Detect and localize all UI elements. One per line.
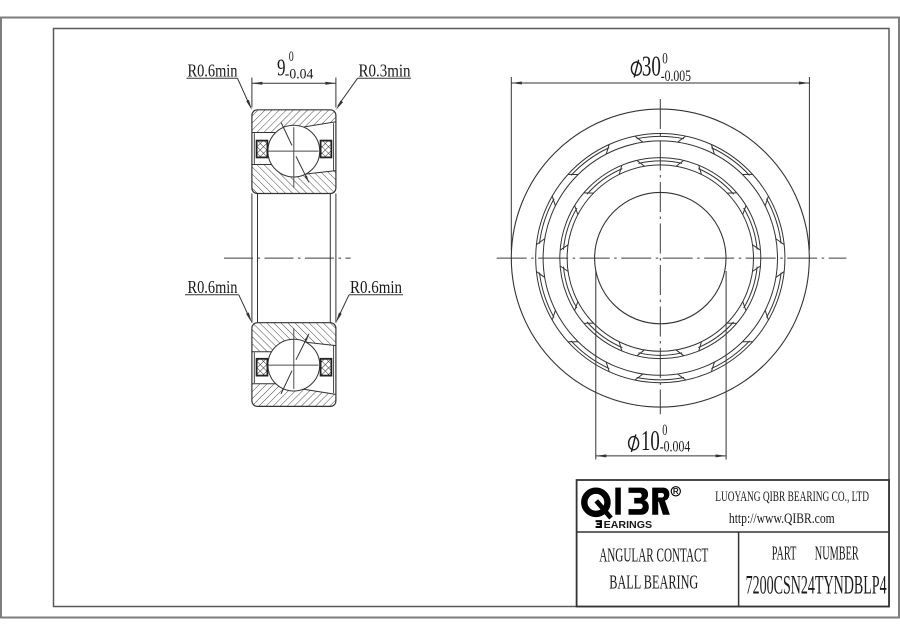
svg-text:30: 30 xyxy=(642,51,661,82)
svg-text:R0.6min: R0.6min xyxy=(350,277,402,297)
svg-text:EARINGS: EARINGS xyxy=(604,519,653,531)
svg-text:PART: PART xyxy=(772,544,797,565)
svg-text:0: 0 xyxy=(289,49,294,65)
svg-text:LUOYANG QIBR BEARING CO., LTD: LUOYANG QIBR BEARING CO., LTD xyxy=(715,489,869,505)
svg-text:BALL BEARING: BALL BEARING xyxy=(609,572,698,593)
svg-text:http://www.QIBR.com: http://www.QIBR.com xyxy=(729,511,835,527)
svg-text:-0.005: -0.005 xyxy=(661,68,691,85)
svg-text:0: 0 xyxy=(662,422,667,439)
svg-text:ANGULAR CONTACT: ANGULAR CONTACT xyxy=(599,546,708,567)
svg-text:-0.004: -0.004 xyxy=(660,439,691,456)
svg-text:7200CSN24TYNDBLP4: 7200CSN24TYNDBLP4 xyxy=(746,570,887,600)
svg-text:0: 0 xyxy=(662,50,668,67)
svg-text:R0.6min: R0.6min xyxy=(188,60,238,80)
svg-text:NUMBER: NUMBER xyxy=(815,544,859,565)
svg-text:R: R xyxy=(673,487,679,496)
svg-text:-0.04: -0.04 xyxy=(285,67,314,83)
svg-text:R0.3min: R0.3min xyxy=(359,60,411,80)
svg-text:10: 10 xyxy=(641,426,660,457)
svg-text:R0.6min: R0.6min xyxy=(188,277,238,297)
